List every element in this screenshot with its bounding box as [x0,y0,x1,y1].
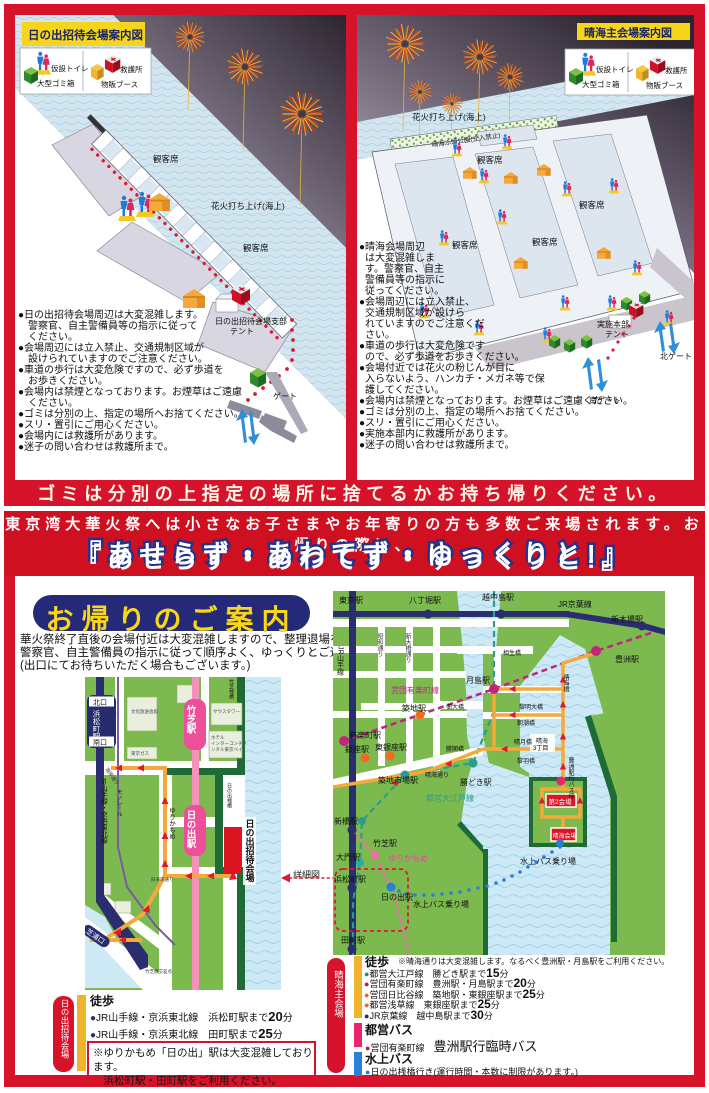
svg-text:3丁目: 3丁目 [533,745,548,752]
svg-text:●スリ・置引にご用心ください。: ●スリ・置引にご用心ください。 [359,416,505,429]
svg-text:勝鬨橋: 勝鬨橋 [446,745,464,753]
svg-text:東京駅: 東京駅 [339,595,363,605]
svg-text:ンタル東京ベイ: ンタル東京ベイ [211,746,243,753]
svg-text:ゆりかもめ: ゆりかもめ [388,854,428,863]
svg-text:観客席: 観客席 [532,237,558,247]
svg-text:晴海会場: 晴海会場 [553,832,577,840]
svg-text:北ゲート: 北ゲート [660,351,692,361]
svg-text:は大変混雑しま: は大変混雑しま [365,251,435,264]
svg-text:●車道の歩行は大変危険です: ●車道の歩行は大変危険です [359,339,485,352]
svg-text:新橋駅: 新橋駅 [334,816,358,826]
svg-text:ので、必ず歩道をお歩きください。: ので、必ず歩道をお歩きください。 [365,350,525,363]
svg-text:花火打ち上げ(海上): 花火打ち上げ(海上) [412,112,486,122]
svg-text:田町駅: 田町駅 [341,936,365,945]
svg-text:東京ガス: 東京ガス [131,750,149,757]
svg-text:浜松町駅: 浜松町駅 [92,709,101,742]
svg-text:竹芝駅: 竹芝駅 [185,704,198,734]
svg-text:日の出駅: 日の出駅 [381,892,413,902]
svg-text:東銀座駅: 東銀座駅 [375,742,407,752]
svg-text:JR山手線: JR山手線 [337,646,345,676]
svg-text:月島駅: 月島駅 [466,675,490,685]
svg-text:観客席: 観客席 [579,200,605,210]
svg-text:仮設トイレ: 仮設トイレ [51,63,89,73]
svg-text:●会場内は禁煙となっております。お煙草はご遠慮: ●会場内は禁煙となっております。お煙草はご遠慮 [18,385,242,398]
svg-text:ください。: ください。 [28,397,78,409]
svg-text:日の出招待会場支部: 日の出招待会場支部 [215,316,287,326]
svg-text:●会場内は禁煙となっております。お煙草はご遠慮ください。: ●会場内は禁煙となっております。お煙草はご遠慮ください。 [359,394,633,407]
svg-text:日の出招待会場: 日の出招待会場 [244,819,255,883]
svg-text:豊洲駅: 豊洲駅 [615,654,639,664]
svg-text:晴海主会場案内図: 晴海主会場案内図 [584,26,672,40]
svg-text:日の出駅: 日の出駅 [185,810,197,849]
svg-text:朝潮橋: 朝潮橋 [517,719,535,727]
svg-text:従ってください。: 従ってください。 [365,284,444,297]
svg-text:黎羽橋: 黎羽橋 [517,757,535,765]
svg-text:晴月橋: 晴月橋 [514,738,532,746]
svg-text:ゲート: ゲート [273,391,297,401]
svg-text:観客席: 観客席 [243,243,269,253]
svg-text:JR京葉線: JR京葉線 [558,599,592,609]
svg-text:●会場周辺には立入禁止、: ●会場周辺には立入禁止、 [359,295,475,308]
svg-text:黎明大橋: 黎明大橋 [519,703,543,711]
svg-text:豊洲駅行バス停: 豊洲駅行バス停 [567,756,574,800]
svg-text:す。警察官、自主: す。警察官、自主 [365,262,444,275]
svg-text:●迷子の問い合わせは救護所まで。: ●迷子の問い合わせは救護所まで。 [359,438,515,451]
svg-text:晴海: 晴海 [536,737,548,745]
svg-text:越中島駅: 越中島駅 [482,592,514,602]
svg-text:れていますのでご注意くだ: れていますのでご注意くだ [365,317,485,330]
svg-text:●会場周辺には立入禁止、交通規制区域が: ●会場周辺には立入禁止、交通規制区域が [18,341,204,354]
svg-text:テント: テント [230,327,254,336]
svg-text:日の出桟橋: 日の出桟橋 [226,783,232,809]
svg-text:水上バス乗り場: 水上バス乗り場 [413,899,469,909]
svg-text:サウスタワー: サウスタワー [213,708,240,715]
svg-text:銀座駅: 銀座駅 [345,744,369,754]
svg-text:昭和通り: 昭和通り [376,633,383,657]
svg-text:晴海通り: 晴海通り [425,771,449,779]
svg-text:文化放送会館: 文化放送会館 [131,708,158,715]
svg-text:竹芝駅: 竹芝駅 [373,838,397,848]
svg-text:●会場内には救護所があります。: ●会場内には救護所があります。 [18,429,163,442]
svg-text:●会場付近では花火の粉じんが目に: ●会場付近では花火の粉じんが目に [359,361,515,374]
svg-text:相生橋: 相生橋 [503,649,521,657]
svg-text:旧海岸通り: 旧海岸通り [151,876,174,883]
svg-text:●ゴミは分別の上、指定の場所へお捨てください。: ●ゴミは分別の上、指定の場所へお捨てください。 [359,405,585,418]
svg-text:●車道の歩行は大変危険ですので、必ず歩道を: ●車道の歩行は大変危険ですので、必ず歩道を [18,363,224,376]
svg-text:交通規制区域が設けら: 交通規制区域が設けら [365,306,465,319]
svg-text:物販ブース: 物販ブース [101,79,138,89]
svg-text:●実施本部内に救護所があります。: ●実施本部内に救護所があります。 [359,427,514,440]
svg-text:築地駅: 築地駅 [402,703,426,713]
svg-text:テント: テント [605,330,629,339]
svg-text:新大橋通り: 新大橋通り [404,632,411,663]
svg-text:都営大江戸線: 都営大江戸線 [426,793,474,803]
svg-text:お歩きください。: お歩きください。 [28,374,108,387]
svg-text:設けられていますのでご注意ください。: 設けられていますのでご注意ください。 [28,352,208,365]
svg-text:観客席: 観客席 [153,154,179,164]
svg-text:観客席: 観客席 [452,240,478,250]
svg-text:八丁堀駅: 八丁堀駅 [409,596,441,605]
svg-text:●日の出招待会場周辺は大変混雑します。: ●日の出招待会場周辺は大変混雑します。 [18,308,203,321]
svg-text:ください。: ください。 [28,331,78,343]
svg-text:佃大橋: 佃大橋 [446,703,464,711]
svg-text:築地市場駅: 築地市場駅 [378,775,418,785]
svg-text:●ゴミは分別の上、指定の場所へお捨てください。: ●ゴミは分別の上、指定の場所へお捨てください。 [18,407,244,420]
svg-text:大型ゴミ箱: 大型ゴミ箱 [37,78,75,88]
svg-text:水上バス乗り場: 水上バス乗り場 [520,856,576,866]
svg-text:竹芝桟橋: 竹芝桟橋 [228,678,234,700]
svg-text:救護所: 救護所 [665,65,688,75]
svg-text:護してください。: 護してください。 [365,383,444,396]
svg-text:●晴海会場周辺: ●晴海会場周辺 [359,240,425,253]
svg-text:●スリ・置引にご用心ください。: ●スリ・置引にご用心ください。 [18,418,164,431]
svg-text:花火打ち上げ(海上): 花火打ち上げ(海上) [211,201,285,211]
svg-text:新木場駅: 新木場駅 [611,614,643,624]
svg-text:観客席: 観客席 [477,155,503,165]
svg-text:北口: 北口 [93,699,107,707]
svg-text:仮設トイレ: 仮設トイレ [596,64,634,74]
svg-text:勝どき駅: 勝どき駅 [460,777,492,787]
svg-text:警察官、自主警備員等の指示に従って: 警察官、自主警備員等の指示に従って [28,319,198,332]
svg-text:営団有楽町線: 営団有楽町線 [391,685,439,695]
svg-text:救護所: 救護所 [120,64,143,74]
svg-text:竹芝橋交差点: 竹芝橋交差点 [145,968,172,975]
svg-text:さい。: さい。 [365,329,395,341]
svg-text:物販ブース: 物販ブース [646,80,683,90]
svg-text:警備員等の指示に: 警備員等の指示に [365,273,445,286]
svg-text:モノレール: モノレール [116,789,123,817]
svg-text:大門駅: 大門駅 [336,852,360,862]
svg-text:晴海橋: 晴海橋 [562,673,569,693]
svg-text:日の出招待会場案内図: 日の出招待会場案内図 [28,28,143,42]
svg-text:大型ゴミ箱: 大型ゴミ箱 [582,79,620,89]
svg-text:●迷子の問い合わせは救護所まで。: ●迷子の問い合わせは救護所まで。 [18,440,174,453]
svg-text:インターコンチネ: インターコンチネ [211,740,247,747]
svg-text:浜松町駅: 浜松町駅 [334,874,366,884]
svg-text:有楽町駅: 有楽町駅 [349,730,381,740]
svg-text:入らないよう、ハンカチ・メガネ等で保: 入らないよう、ハンカチ・メガネ等で保 [365,372,545,385]
svg-text:実施本部: 実施本部 [597,319,629,329]
